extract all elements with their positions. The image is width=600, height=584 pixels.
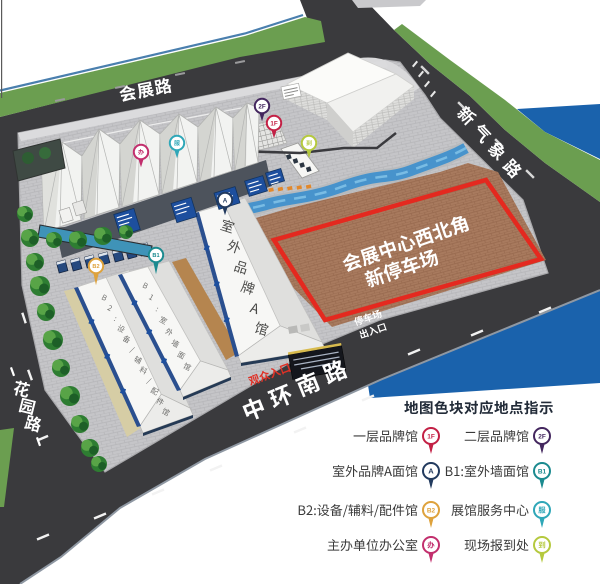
svg-text:A: A xyxy=(223,197,228,204)
svg-text:B2: B2 xyxy=(427,507,436,514)
svg-text:B1: B1 xyxy=(538,468,547,475)
svg-text:1F: 1F xyxy=(270,120,278,127)
svg-text:2F: 2F xyxy=(258,103,266,110)
svg-text:A: A xyxy=(428,467,434,476)
svg-text:B1: B1 xyxy=(152,253,159,259)
svg-text:1F: 1F xyxy=(427,433,435,440)
svg-text:B2: B2 xyxy=(92,264,99,270)
svg-text:2F: 2F xyxy=(538,433,546,440)
